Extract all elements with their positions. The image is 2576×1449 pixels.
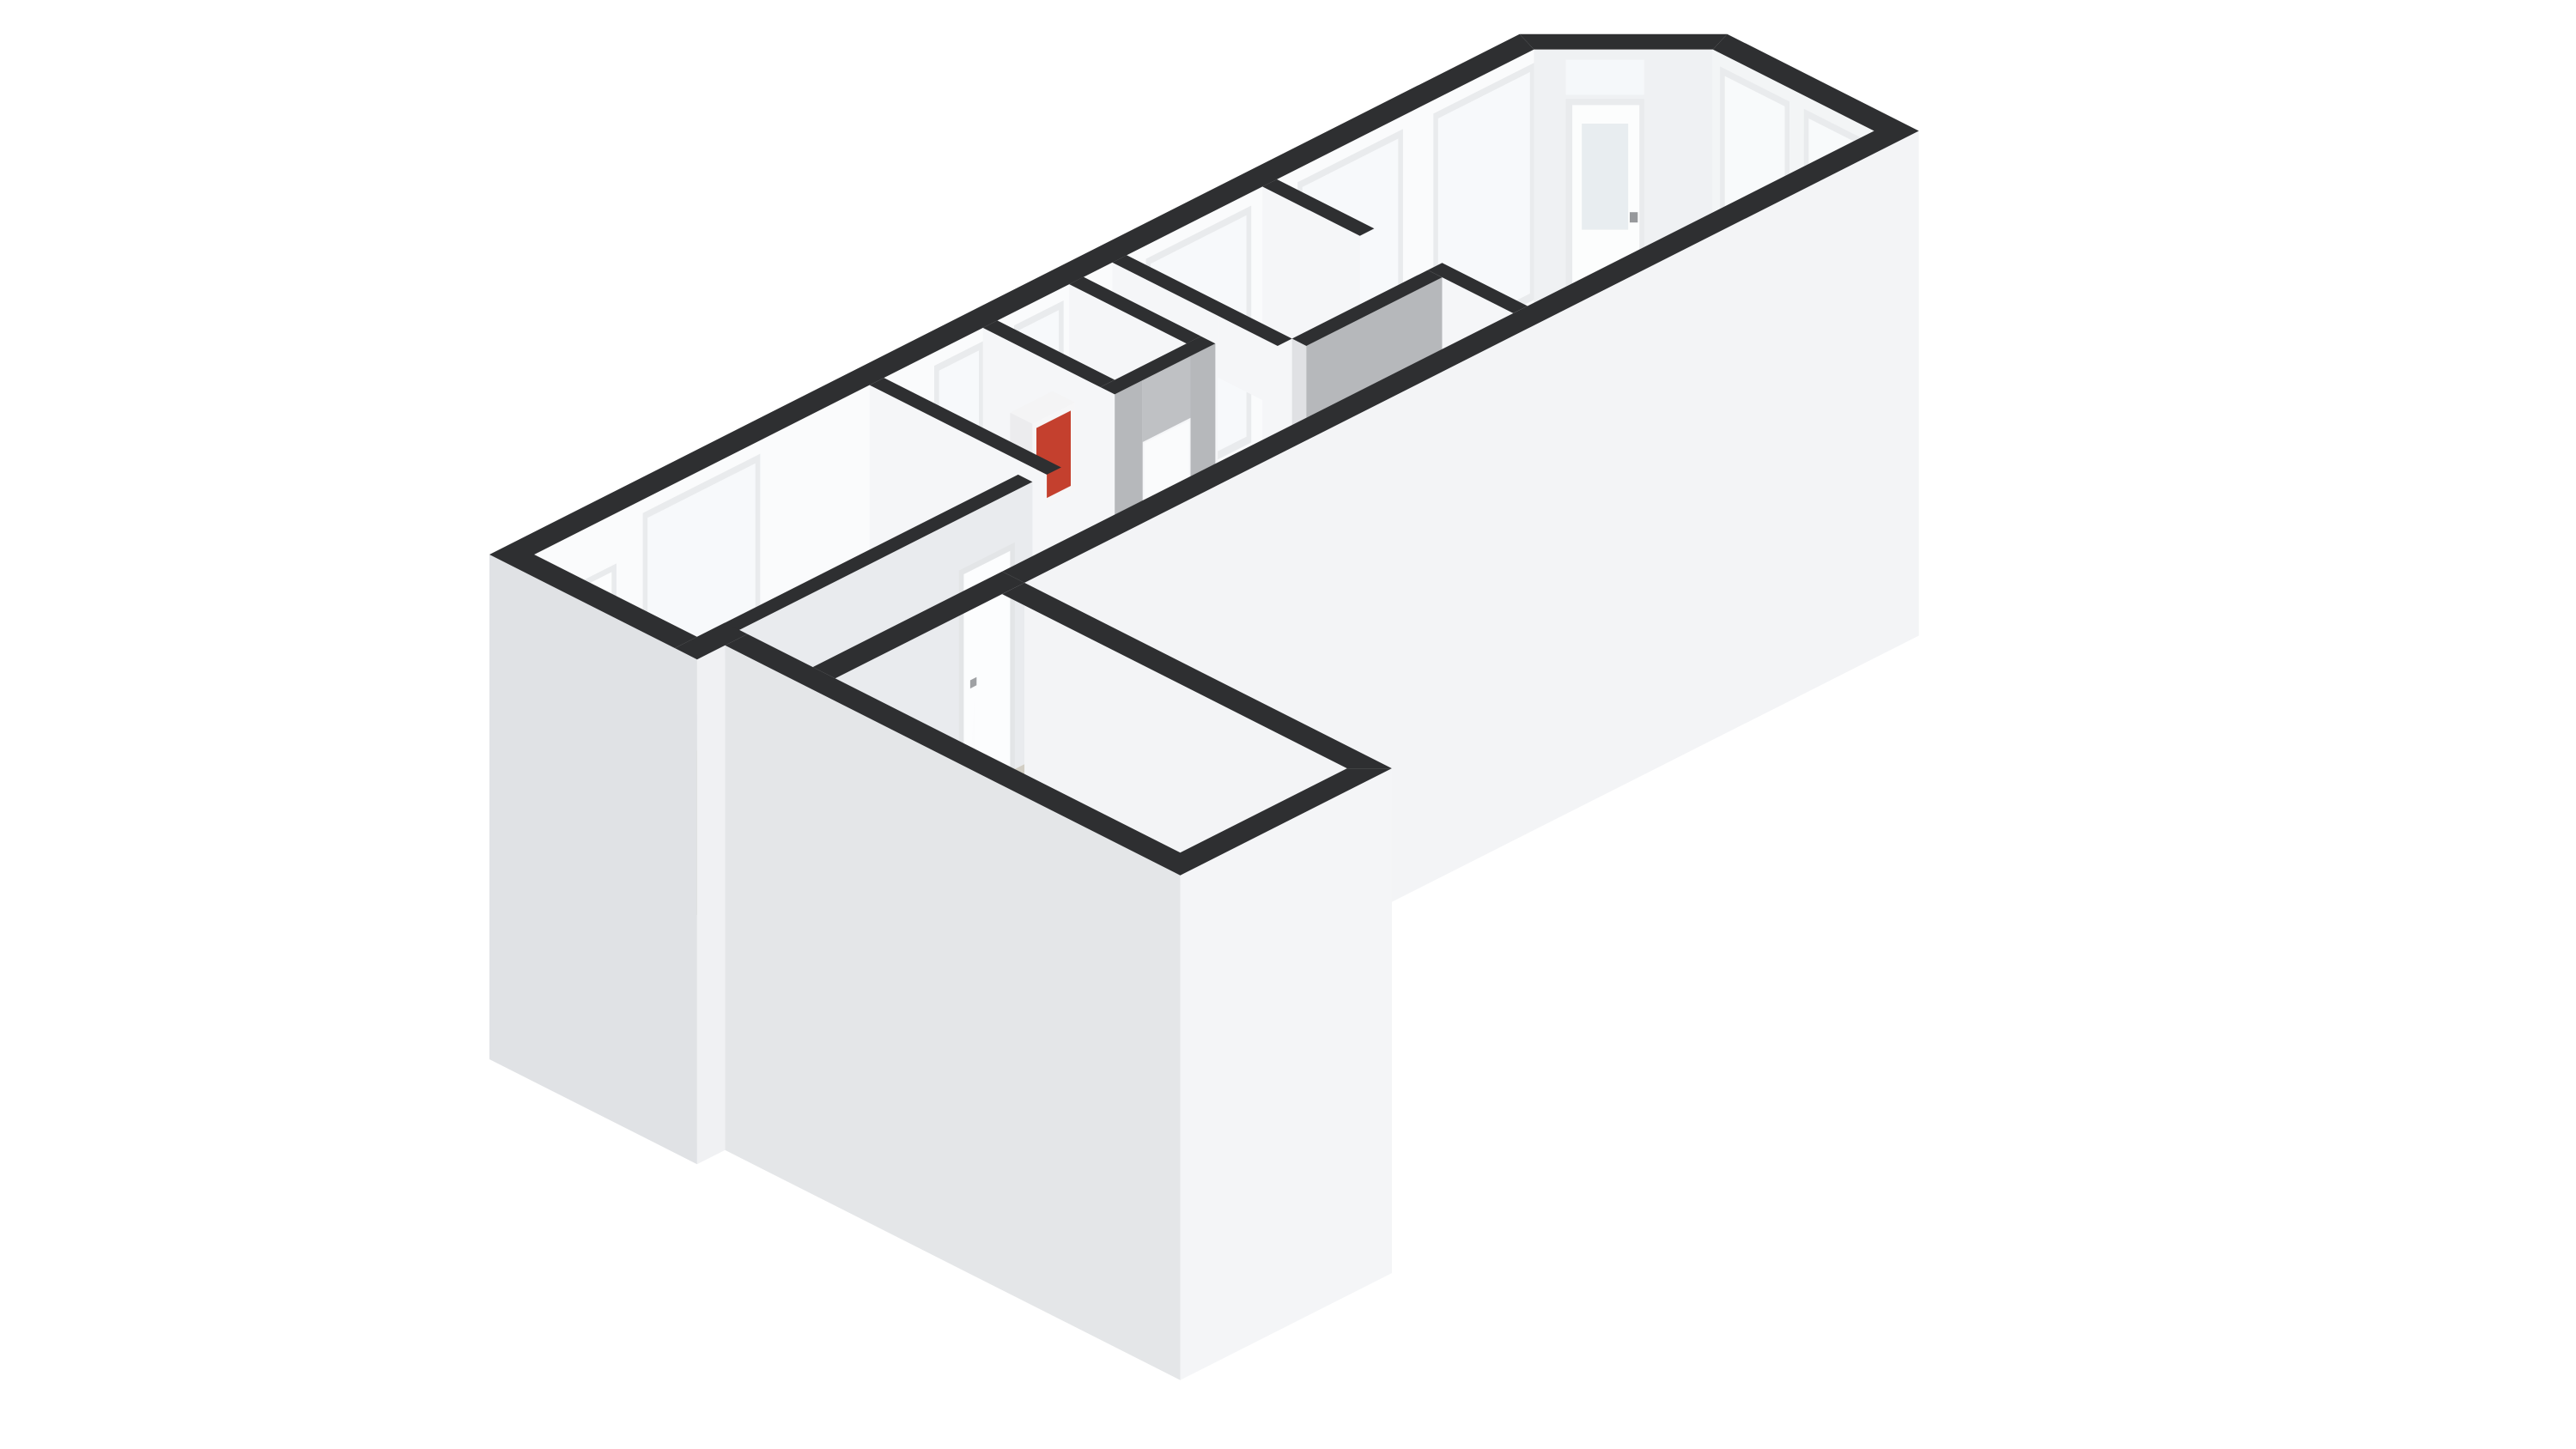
notch-outer-face [697, 646, 726, 1164]
floorplan-canvas [0, 0, 2576, 1449]
entry-door-handle [1630, 212, 1637, 222]
floorplan-3d-render [0, 0, 2576, 1449]
sw-end-outer-face [489, 555, 697, 1164]
extension-se-outer-face [1181, 768, 1392, 1380]
entry-door-glass [1582, 124, 1628, 230]
entry-transom-glass [1566, 60, 1644, 95]
chamfer-wall-top [1520, 34, 1728, 50]
